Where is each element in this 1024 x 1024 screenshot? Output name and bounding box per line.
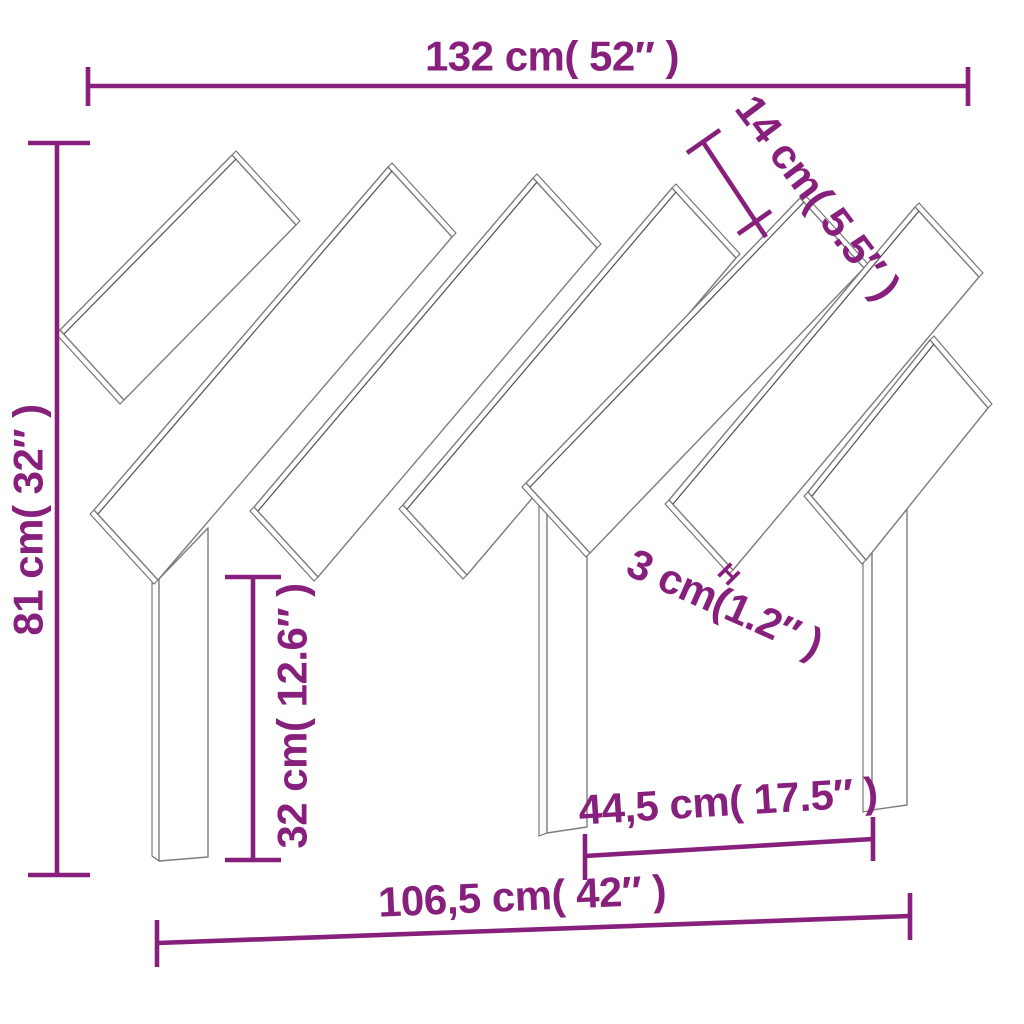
dimension-tick [738,211,771,234]
dim-overall-width: 132 cm( 52″ ) [88,33,968,107]
dimension-line [157,916,910,943]
dim-outer-leg-span: 106,5 cm( 42″ ) [157,866,910,967]
dimension-diagram-page: 132 cm( 52″ ) 81 cm( 32″ ) 14 cm( 5.5″ )… [0,0,1024,1024]
dimension-label: 106,5 cm( 42″ ) [377,866,667,926]
dimension-label: 132 cm( 52″ ) [425,33,679,80]
dimension-label: 81 cm( 32″ ) [5,404,52,635]
dimension-line [585,839,873,856]
left-leg-side-face [152,579,159,861]
dim-overall-height: 81 cm( 32″ ) [5,143,91,875]
center-leg-side-face [539,500,547,836]
center-leg-front-face [547,509,587,833]
left-leg-front-face [159,528,208,861]
dim-inner-leg-span: 44,5 cm( 17.5″ ) [577,768,879,880]
dim-leg-height: 32 cm( 12.6″ ) [225,577,316,860]
right-leg-front-face [872,509,907,810]
dimension-label: 44,5 cm( 17.5″ ) [577,768,879,833]
dimension-tick [687,130,720,153]
dimension-label: 32 cm( 12.6″ ) [269,583,316,848]
headboard-dimension-drawing: 132 cm( 52″ ) 81 cm( 32″ ) 14 cm( 5.5″ )… [0,0,1024,1024]
